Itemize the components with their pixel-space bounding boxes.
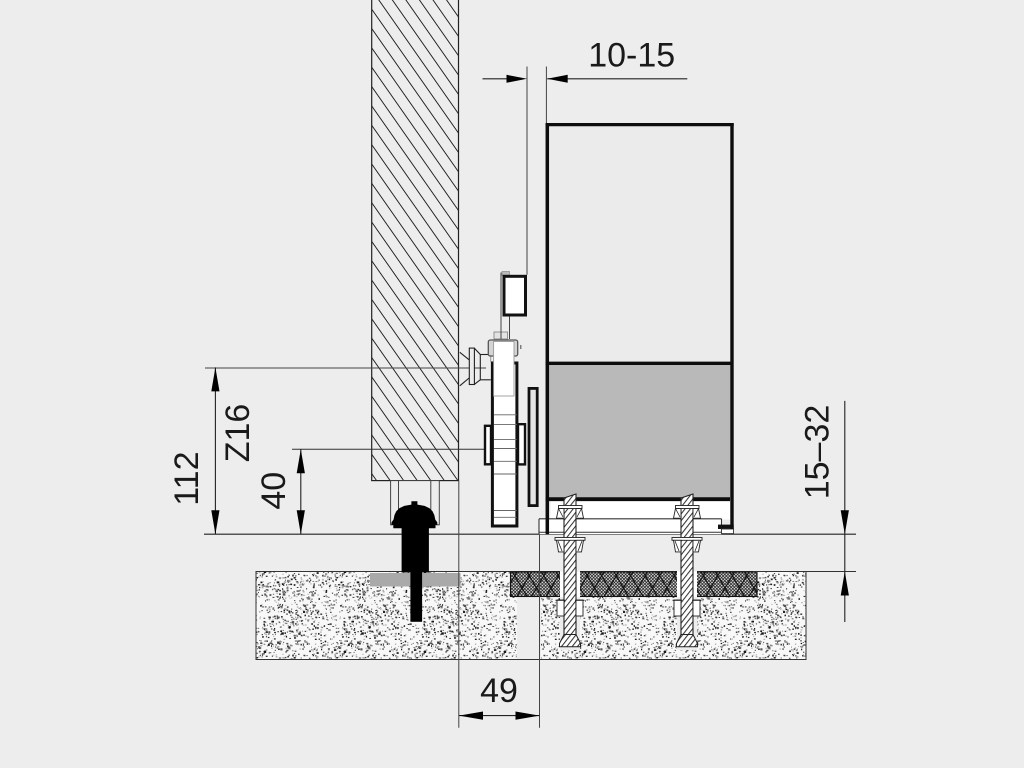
svg-text:40: 40 — [255, 472, 293, 510]
svg-text:112: 112 — [168, 451, 206, 505]
svg-text:49: 49 — [480, 672, 518, 710]
svg-text:10-15: 10-15 — [588, 37, 675, 75]
svg-text:15–32: 15–32 — [798, 405, 836, 500]
svg-text:Z16: Z16 — [219, 404, 257, 463]
